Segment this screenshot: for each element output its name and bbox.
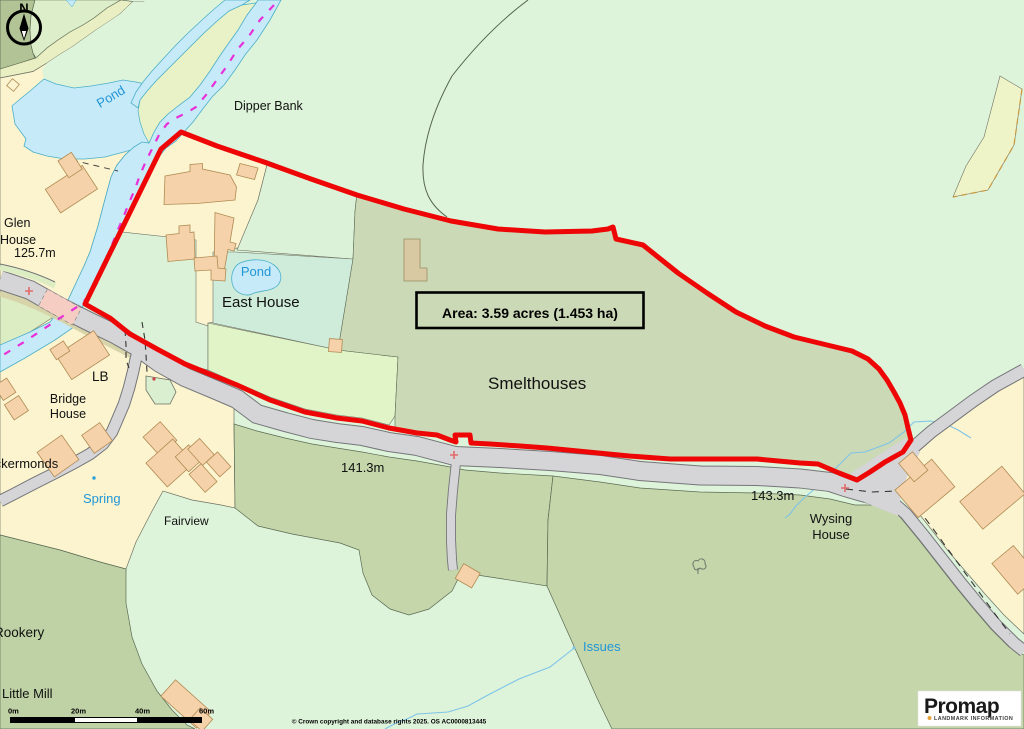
svg-text:N: N [19,1,28,16]
svg-text:Spring: Spring [83,491,121,506]
svg-text:Little Mill: Little Mill [2,686,53,701]
svg-text:Issues: Issues [583,639,621,654]
svg-text:Ackermonds: Ackermonds [0,456,59,471]
svg-text:Fairview: Fairview [164,514,209,528]
svg-text:143.3m: 143.3m [751,488,794,503]
svg-text:LB: LB [92,369,109,384]
svg-text:LANDMARK INFORMATION: LANDMARK INFORMATION [934,716,1013,722]
svg-text:House: House [0,233,36,247]
svg-text:Dipper Bank: Dipper Bank [234,99,304,113]
svg-text:60m: 60m [199,707,214,716]
svg-text:House: House [50,407,86,421]
svg-text:40m: 40m [135,707,150,716]
svg-text:© Crown copyright and database: © Crown copyright and database rights 20… [292,718,487,726]
svg-text:Smelthouses: Smelthouses [488,374,586,393]
svg-text:Glen: Glen [4,216,30,230]
svg-text:Rookery: Rookery [0,625,45,640]
svg-text:Promap: Promap [924,695,999,718]
svg-text:Bridge: Bridge [50,392,86,406]
svg-text:Wysing: Wysing [810,511,853,526]
svg-text:141.3m: 141.3m [341,460,384,475]
svg-text:Area: 3.59 acres (1.453 ha): Area: 3.59 acres (1.453 ha) [442,305,618,321]
svg-text:House: House [812,527,850,542]
svg-text:Pond: Pond [241,264,271,279]
svg-text:East House: East House [222,294,300,311]
svg-text:0m: 0m [8,707,19,716]
svg-text:20m: 20m [71,707,86,716]
svg-text:125.7m: 125.7m [14,246,56,260]
